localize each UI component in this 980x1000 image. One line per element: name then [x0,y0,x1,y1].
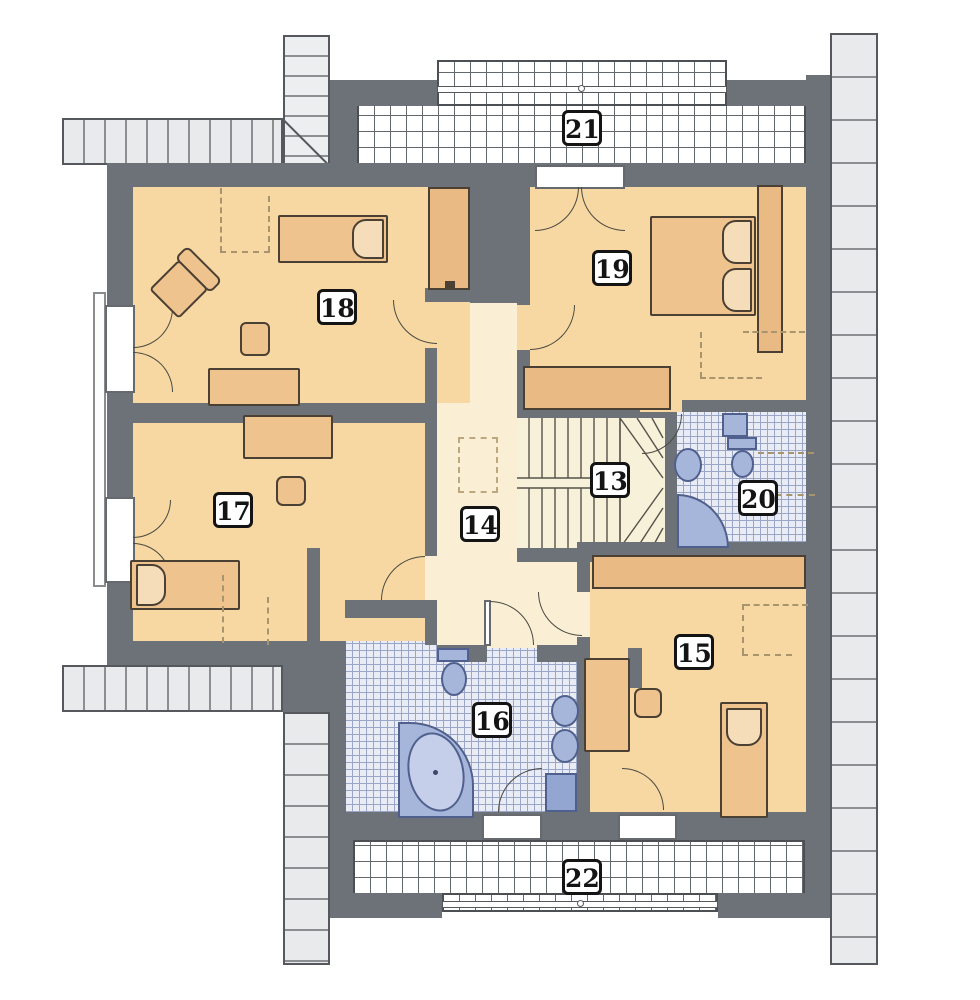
closet-room18 [428,187,470,290]
room-label-17: 17 [213,492,253,528]
wall-top [107,163,830,187]
chimney [283,35,330,165]
wardrobe-room19-side [757,185,783,353]
room-label-22: 22 [562,859,602,895]
balcony-door-threshold-16 [482,814,542,840]
roof-slope-dash [700,332,702,378]
roof-slope-dash [700,377,762,379]
roof-slope-dash [267,597,269,645]
roof-slope-dash [744,604,808,606]
railing-post-bottom [577,900,584,907]
balcony-door-threshold-15 [618,814,677,840]
roof-slope-dash [742,654,792,656]
balcony-door-threshold-21 [535,165,625,189]
pillow [726,708,762,746]
pillow [136,564,166,606]
roof-strip-right [830,33,878,965]
toilet-20-tank [727,437,757,450]
toilet-16-tank [437,648,469,662]
wardrobe-room15 [592,555,806,589]
door-gap-room17 [425,556,437,600]
roof-slope-dash [220,188,222,252]
roof-slope-dash [222,575,224,643]
wall-right [806,163,830,840]
floor-plan: 13 14 15 16 17 18 19 20 21 22 [0,0,980,1000]
pillow [722,268,752,312]
roof-slope-dash [220,251,270,253]
wall-balcony21-parapet-right [727,80,806,106]
eaves-strip-bottom-left [62,665,283,712]
wall-corridor-bottom-right [537,645,577,662]
eaves-strip-top-left [62,118,283,165]
wall-stub-room17 [307,548,320,645]
roof-strip-left-lower [283,712,330,965]
balcony-21-bay [437,60,727,106]
railing-post-top [578,85,585,92]
toilet-20-bowl [731,450,754,478]
pillow [722,220,752,264]
wall-balcony21-right [806,75,830,165]
window-room18 [105,305,135,393]
washbasin-16-a [551,695,579,727]
wall-balcony22-parapet-right [718,893,830,918]
desk-room18 [208,368,300,406]
toilet-16-bowl [441,662,467,696]
washbasin-20 [674,448,702,482]
wall-balcony21-parapet-left [330,80,437,106]
room-label-14: 14 [460,506,500,542]
wall-pier-18-19 [470,163,530,303]
room-label-19: 19 [592,250,632,286]
pillow [352,219,384,259]
wall-bath16-left [330,641,346,840]
roof-slope-dash [743,331,805,333]
roof-slope-dash [742,604,744,654]
roof-slope-dash [775,494,815,496]
wall-bath16-top [345,600,430,618]
desk-room15 [584,658,630,752]
door-gap-room19 [517,305,530,350]
bathroom-cabinet [545,773,577,812]
room-label-18: 18 [317,289,357,325]
room-label-16: 16 [472,702,512,738]
chair-room15 [634,688,662,718]
room-label-21: 21 [562,110,602,146]
chair-room17 [276,476,306,506]
washbasin-16-b [551,729,579,763]
room-label-15: 15 [674,634,714,670]
room-label-13: 13 [590,462,630,498]
wall-balcony22-parapet-left [330,893,442,918]
stool-room18 [240,322,270,356]
room-label-20: 20 [738,480,778,516]
wardrobe-room19-bottom [523,366,671,410]
ceiling-opening-dash [458,437,498,493]
roof-slope-dash [268,196,270,252]
desk-room17 [243,415,333,459]
bathtub-drain [433,770,438,775]
roof-slope-dash [758,452,814,454]
closet-knob [445,281,455,288]
wall-stub-room15 [628,648,642,688]
washer-20 [722,413,748,437]
wall-corner-sw [283,641,330,712]
